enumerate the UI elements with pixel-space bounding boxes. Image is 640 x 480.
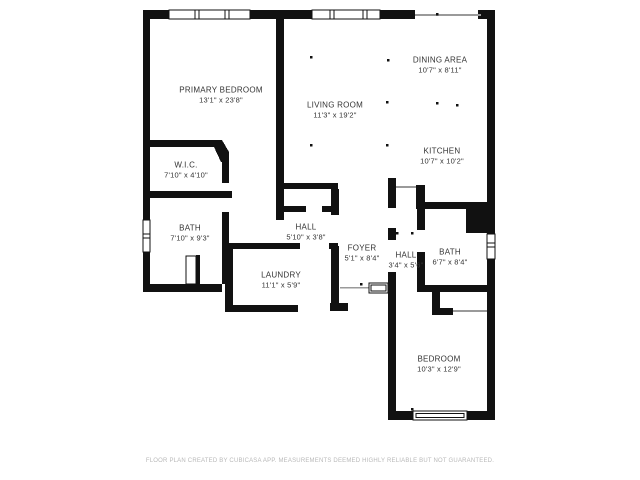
room-dims: 6'7" x 8'4": [433, 258, 468, 267]
room-label-hall-lower: HALL 3'4" x 5'6": [389, 251, 424, 270]
room-label-laundry: LAUNDRY 11'1" x 5'9": [261, 271, 301, 290]
room-dims: 7'10" x 4'10": [164, 171, 208, 180]
room-name: PRIMARY BEDROOM: [179, 86, 262, 95]
room-name: BEDROOM: [417, 355, 461, 364]
room-label-bedroom: BEDROOM 10'3" x 12'9": [417, 355, 461, 374]
room-name: LIVING ROOM: [307, 101, 363, 110]
room-dims: 7'10" x 9'3": [170, 234, 209, 243]
room-label-dining-area: DINING AREA 10'7" x 8'11": [413, 56, 467, 75]
room-dims: 3'4" x 5'6": [389, 261, 424, 270]
room-name: FOYER: [345, 244, 380, 253]
room-label-kitchen: KITCHEN 10'7" x 10'2": [420, 147, 464, 166]
room-label-primary-bedroom: PRIMARY BEDROOM 13'1" x 23'8": [179, 86, 262, 105]
disclaimer-text: FLOOR PLAN CREATED BY CUBICASA APP. MEAS…: [0, 458, 640, 464]
front-door-icon: [369, 283, 388, 293]
room-label-living-room: LIVING ROOM 11'3" x 19'2": [307, 101, 363, 120]
room-dims: 10'7" x 8'11": [413, 66, 467, 75]
room-name: KITCHEN: [420, 147, 464, 156]
room-dims: 10'3" x 12'9": [417, 365, 461, 374]
room-name: HALL: [286, 223, 325, 232]
room-label-bath-right: BATH 6'7" x 8'4": [433, 248, 468, 267]
room-dims: 11'1" x 5'9": [261, 281, 301, 290]
room-name: W.I.C.: [164, 161, 208, 170]
room-label-wic: W.I.C. 7'10" x 4'10": [164, 161, 208, 180]
room-dims: 5'10" x 3'8": [286, 233, 325, 242]
room-dims: 5'1" x 8'4": [345, 254, 380, 263]
room-label-foyer: FOYER 5'1" x 8'4": [345, 244, 380, 263]
room-name: DINING AREA: [413, 56, 467, 65]
room-dims: 10'7" x 10'2": [420, 157, 464, 166]
room-dims: 13'1" x 23'8": [179, 96, 262, 105]
room-name: HALL: [389, 251, 424, 260]
room-label-hall-upper: HALL 5'10" x 3'8": [286, 223, 325, 242]
bath-door-leaf-icon: [186, 256, 196, 284]
room-name: BATH: [170, 224, 209, 233]
floorplan-canvas: PRIMARY BEDROOM 13'1" x 23'8" LIVING ROO…: [0, 0, 640, 480]
room-label-bath-left: BATH 7'10" x 9'3": [170, 224, 209, 243]
room-name: BATH: [433, 248, 468, 257]
room-dims: 11'3" x 19'2": [307, 111, 363, 120]
room-name: LAUNDRY: [261, 271, 301, 280]
